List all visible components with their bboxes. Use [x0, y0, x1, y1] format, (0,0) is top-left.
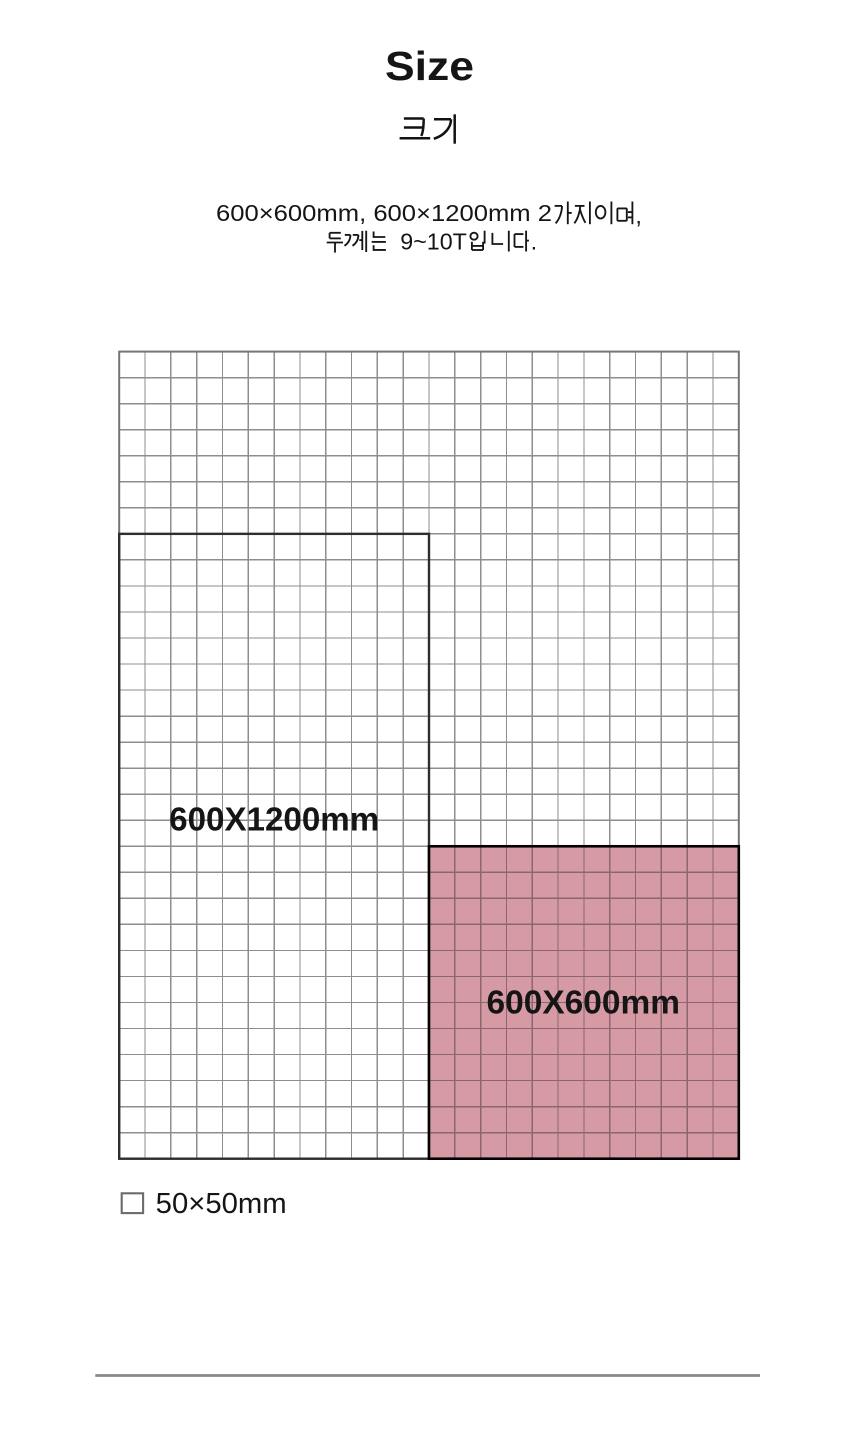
svg-text:Size: Size	[385, 43, 474, 89]
svg-text:600X600mm: 600X600mm	[487, 984, 681, 1021]
svg-text:9~10T: 9~10T	[400, 229, 467, 255]
svg-text:50×50mm: 50×50mm	[156, 1188, 287, 1220]
svg-text:,: ,	[635, 202, 642, 228]
svg-text:.: .	[531, 229, 538, 255]
svg-text:600X1200mm: 600X1200mm	[169, 800, 379, 837]
svg-text:600×600mm, 600×1200mm 2: 600×600mm, 600×1200mm 2	[216, 200, 552, 226]
